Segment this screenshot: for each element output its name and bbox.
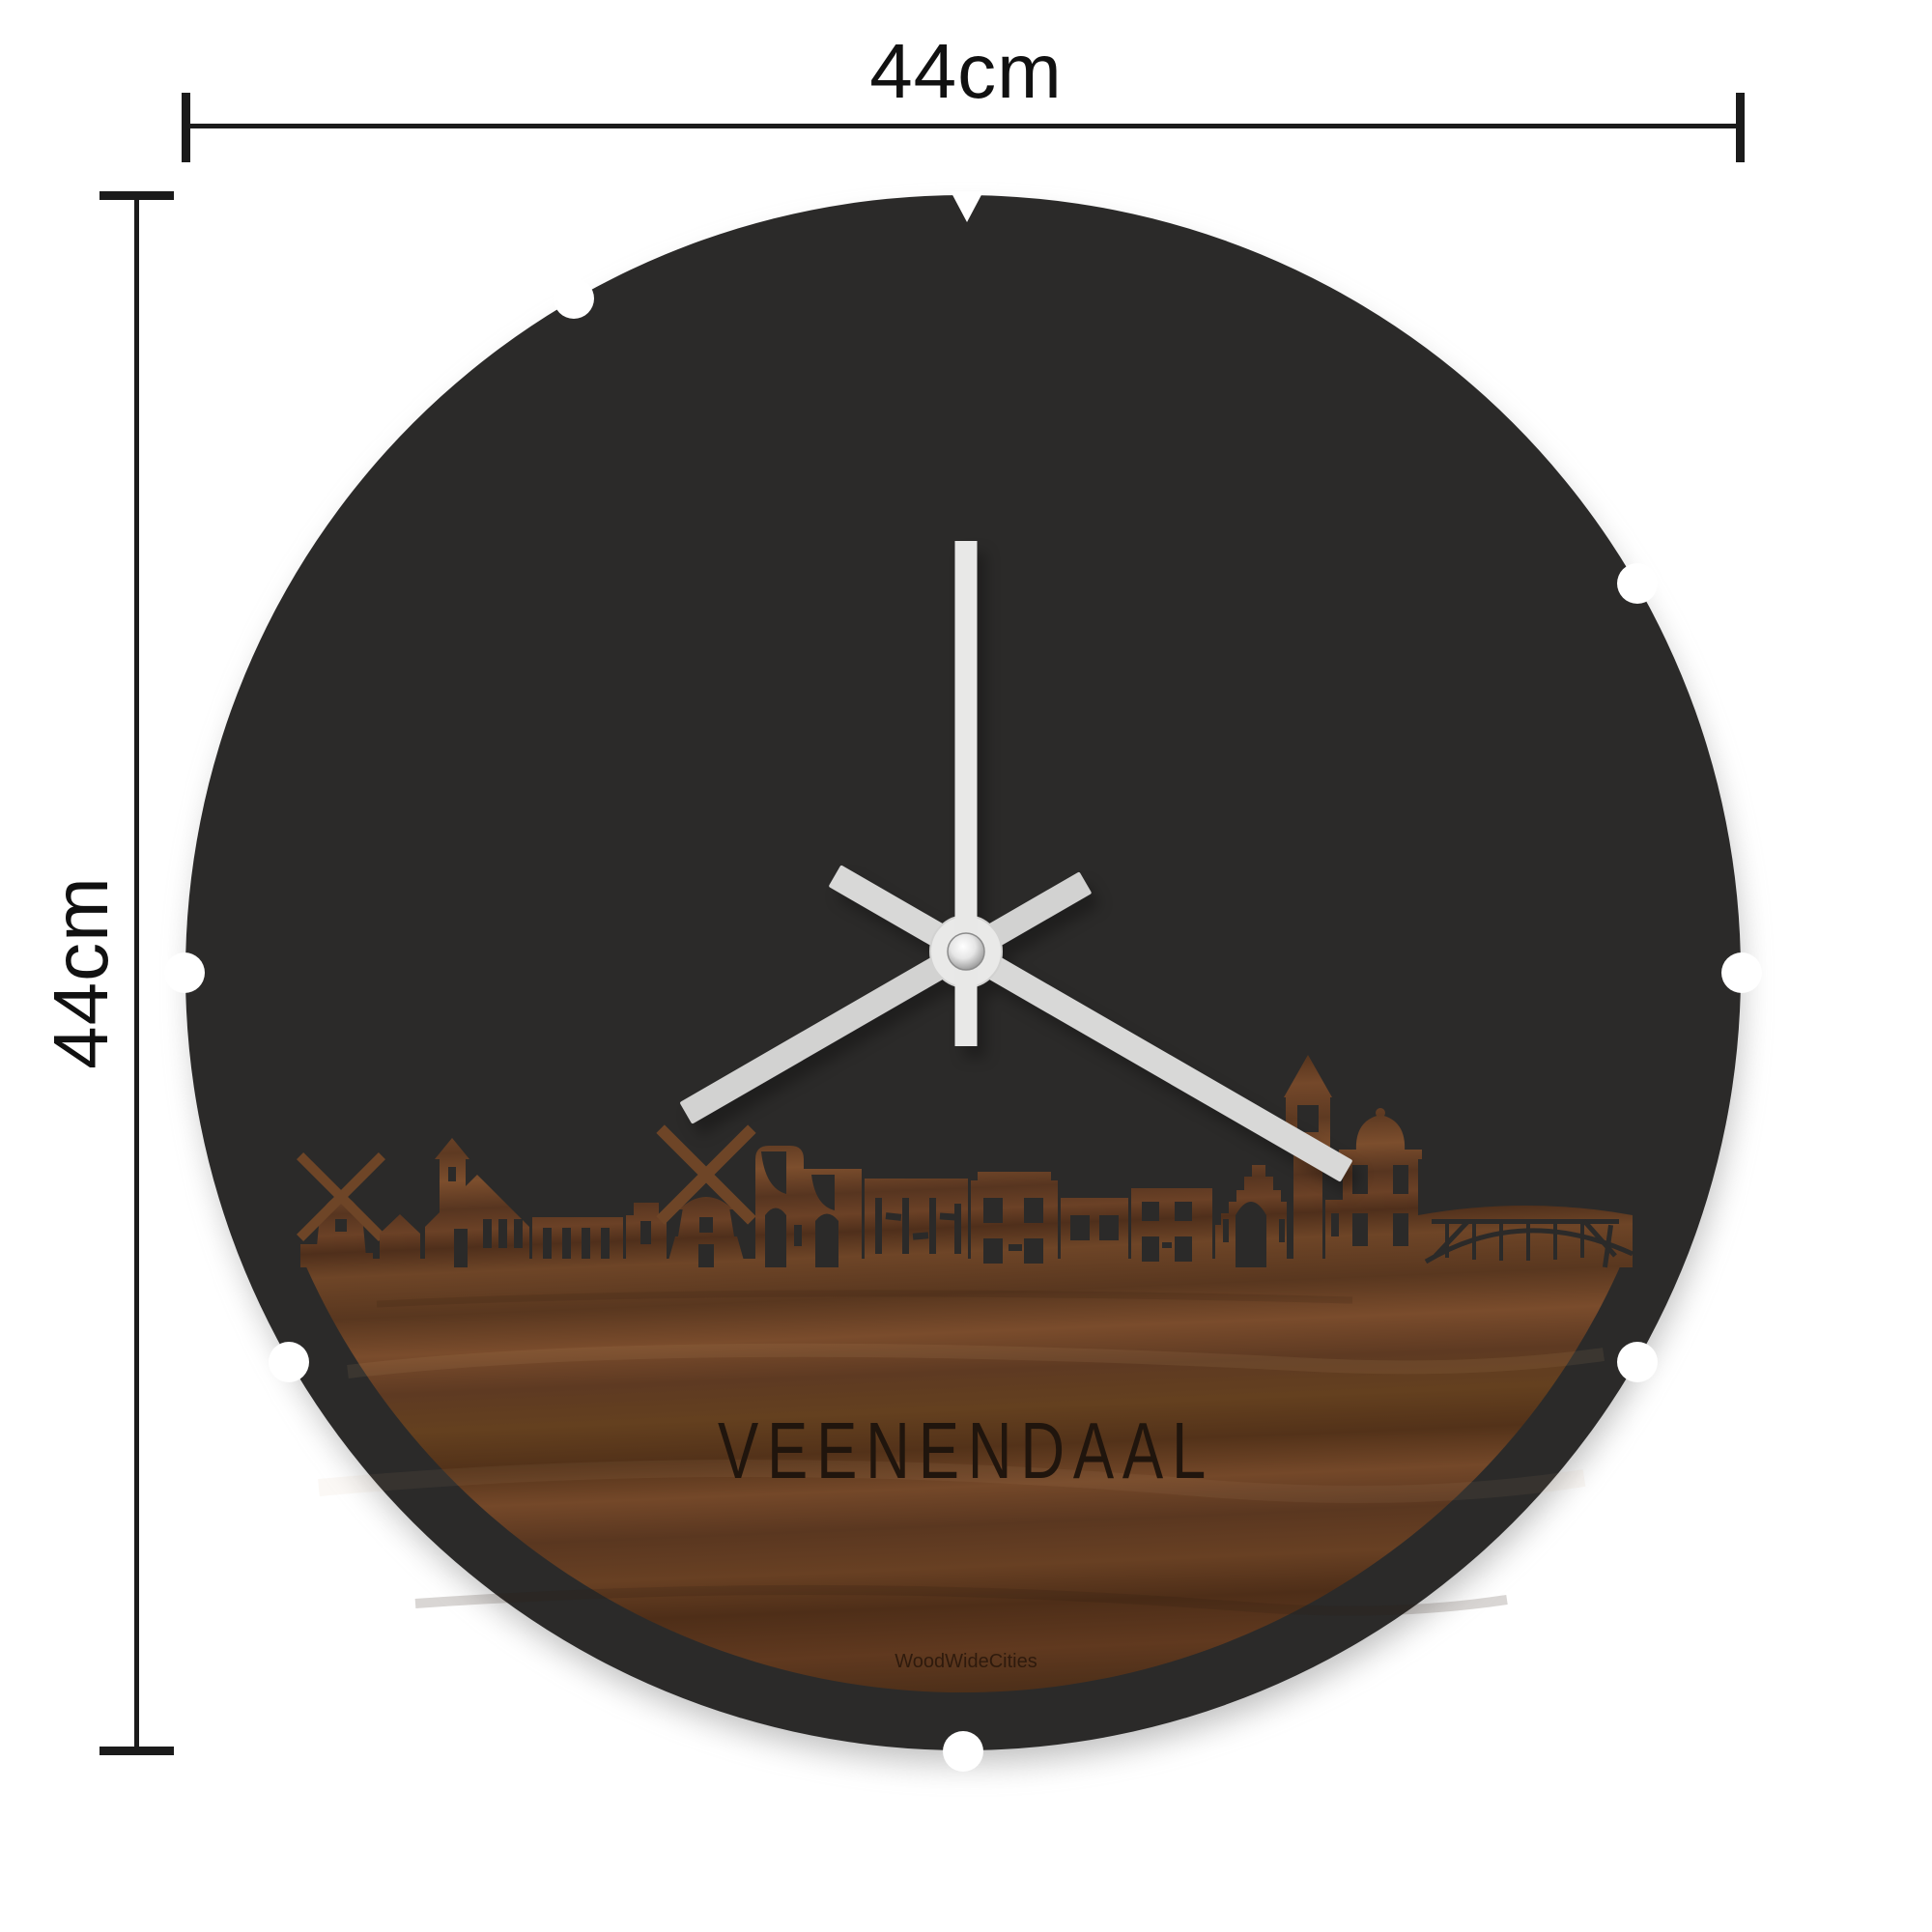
notch-3-icon (1721, 952, 1762, 993)
hub-cap-icon (948, 933, 984, 970)
notch-4-icon (1617, 1342, 1658, 1382)
notch-11-icon (554, 278, 594, 319)
brand-label: WoodWideCities (895, 1651, 1037, 1672)
notch-9-icon (164, 952, 205, 993)
notch-6-icon (943, 1731, 983, 1772)
wall-clock-image: VEENENDAAL WoodWideCities (0, 0, 1932, 1932)
city-label: VEENENDAAL (718, 1406, 1214, 1495)
city-engraving: VEENENDAAL (718, 1406, 1214, 1495)
notch-8-icon (269, 1342, 309, 1382)
product-dimension-diagram: 44cm 44cm (0, 0, 1932, 1932)
notch-2-icon (1617, 563, 1658, 604)
